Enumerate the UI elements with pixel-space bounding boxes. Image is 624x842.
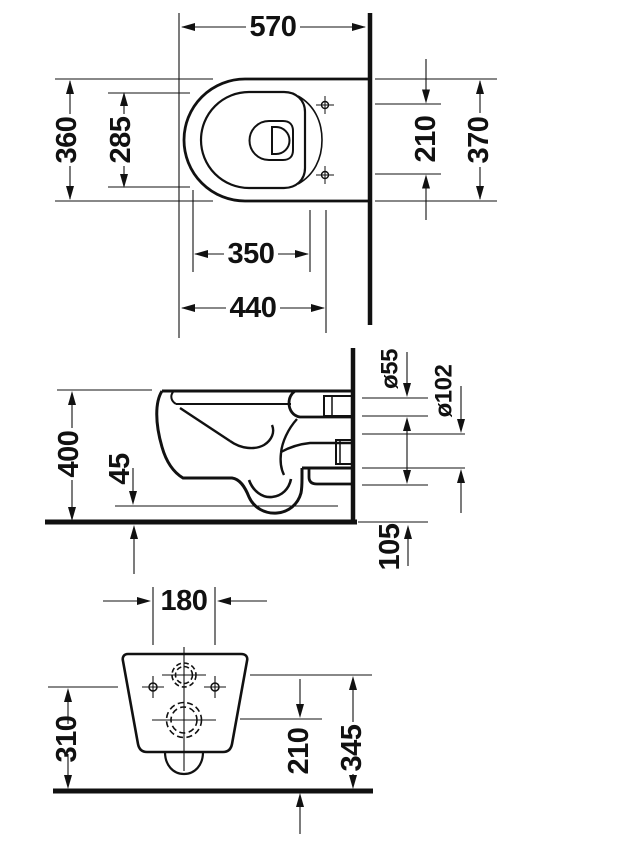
top-view-dim-lines: [70, 27, 480, 308]
dim-285: 285: [105, 116, 137, 163]
dim-360: 360: [51, 117, 83, 164]
seat-hinge-arc: [298, 96, 322, 184]
fixing-hole-top-2: [316, 166, 334, 184]
dim-210-top: 210: [410, 116, 442, 163]
dim-570: 570: [250, 11, 297, 43]
dim-350: 350: [228, 238, 275, 270]
dim-440: 440: [230, 292, 277, 324]
dim-inlet-diameter: ø55: [377, 349, 404, 389]
fixing-hole-top-1: [316, 96, 334, 114]
technical-drawing: 570 360 285 350 440 210 370: [0, 0, 624, 842]
top-view: 570 360 285 350 440 210 370: [51, 11, 497, 338]
dim-370: 370: [463, 117, 495, 164]
rear-view-dim-lines: [68, 601, 353, 834]
drawing-canvas: 570 360 285 350 440 210 370: [0, 0, 624, 842]
dim-105: 105: [374, 523, 406, 570]
flush-button-inner: [272, 127, 290, 154]
body-outline-rear: [123, 654, 248, 752]
dim-310: 310: [51, 716, 83, 763]
dim-outlet-diameter: ø102: [431, 364, 458, 417]
side-view: 400 45 ø55 ø102 105: [45, 348, 465, 574]
rear-view: 180 310 210 345: [48, 585, 373, 834]
top-view-arrows: [66, 23, 484, 312]
dim-210-rear: 210: [283, 728, 315, 775]
bowl-profile: [157, 391, 352, 513]
dim-180: 180: [161, 585, 208, 617]
rear-view-arrows: [64, 597, 357, 807]
dim-345: 345: [336, 724, 368, 771]
dim-45: 45: [104, 453, 136, 485]
bowl-outline-top: [184, 79, 368, 201]
dim-400: 400: [53, 431, 85, 478]
